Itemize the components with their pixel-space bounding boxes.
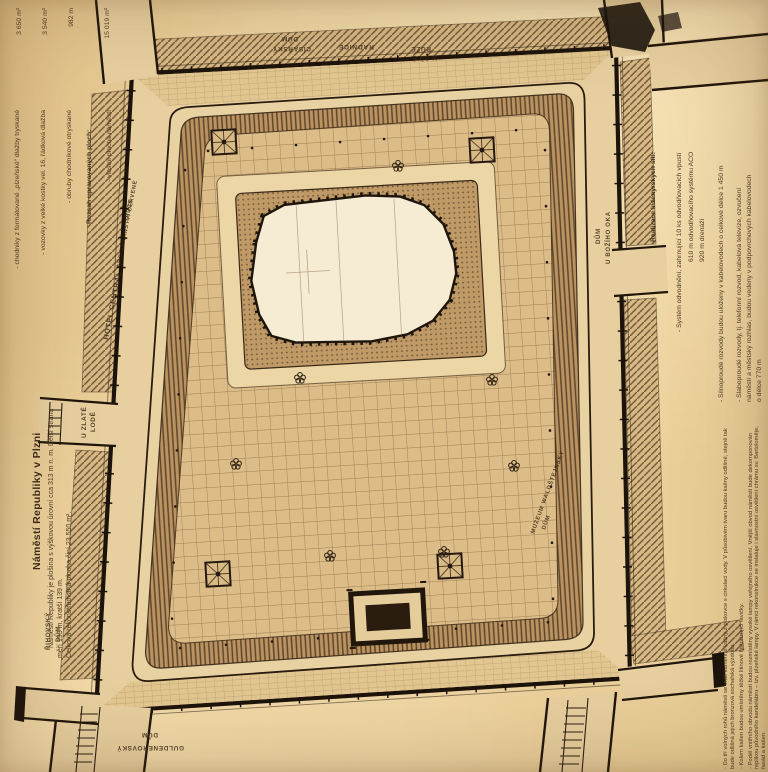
area-value-4: 15 019 m² (104, 8, 113, 50)
scanned-plan-page: { "page_title": "Náměstí Republiky v Plz… (0, 0, 768, 772)
area-item-3: - obruby chodníkové otryskané (66, 110, 75, 322)
area-item-1: - chodníky z formátované „plzeňské“ dlaž… (14, 110, 23, 322)
intro-paragraph: Náměstí Republiky je plošina s výškovou … (47, 394, 77, 658)
cathedral (216, 161, 505, 388)
intro-line-3: Celková rekonstruovaná plocha činí 23 55… (65, 394, 74, 658)
area-item-4: - vlastní plocha náměstí (106, 110, 115, 322)
networks-item1-line3: 920 m drenáží (699, 102, 708, 262)
notes-paragraph-1: - Do tří volných rohů náměstí se vrátí k… (723, 423, 736, 769)
label-boziho-oka-1: DŮM (594, 228, 602, 244)
label-u-zlate-1: U ZLATÉ (79, 407, 88, 438)
page-title: Náměstí Republiky v Plzni (31, 402, 43, 570)
notes-paragraph-2: - Kolem kašen budou umístěny těžké litin… (739, 423, 746, 769)
networks-header: Realizace inženýrských sítí: (650, 108, 659, 242)
networks-item3-line1: - Slaboproudé rozvody, tj. telefonní roz… (736, 140, 745, 402)
intro-line-2: měří 193 m, kratší 139 m. (56, 394, 65, 658)
notes-block: - Do tří volných rohů náměstí se vrátí k… (723, 423, 768, 769)
networks-item1-line1: - Systém odvodnění, zahrnující 10 ks odv… (676, 100, 685, 332)
notes-paragraph-3: - Podél vnitřního obvodu náměstí budou r… (748, 423, 768, 769)
label-radnice: RADNICE (338, 43, 374, 50)
area-value-3: 982 m (68, 8, 77, 50)
area-value-2: 3 540 m² (42, 8, 51, 50)
networks-item3-line2: náměstí a městský rozhlas, budou vedeny … (746, 140, 755, 402)
label-u-bile-ruze-1: U BÍLÉ (412, 54, 437, 63)
networks-item2-line1: - Silnoproudé rozvody budou uloženy v ka… (718, 140, 727, 402)
label-cisarsky-dum-1: CÍSAŘSKÝ (272, 45, 311, 54)
fountain (346, 582, 429, 648)
intro-line-1: Náměstí Republiky je plošina s výškovou … (47, 394, 56, 658)
networks-item1-line2: 610 m odvodňovacího systému ACO (688, 102, 697, 262)
label-guldenerovsky-1: GULDENEROVSKÝ (117, 744, 184, 753)
label-u-zlate-2: LODĚ (88, 411, 97, 432)
cathedral-outline (247, 191, 460, 348)
label-boziho-oka-2: U BOŽÍHO OKA (604, 211, 612, 264)
area-value-1: 3 650 m² (16, 8, 25, 50)
areas-header: Rozsah upravovaných ploch: (86, 98, 95, 224)
networks-item3-line3: o délce 770 m (756, 140, 765, 402)
area-item-2: - vozovky z velké kostky vel. 16, řádkov… (40, 110, 49, 322)
